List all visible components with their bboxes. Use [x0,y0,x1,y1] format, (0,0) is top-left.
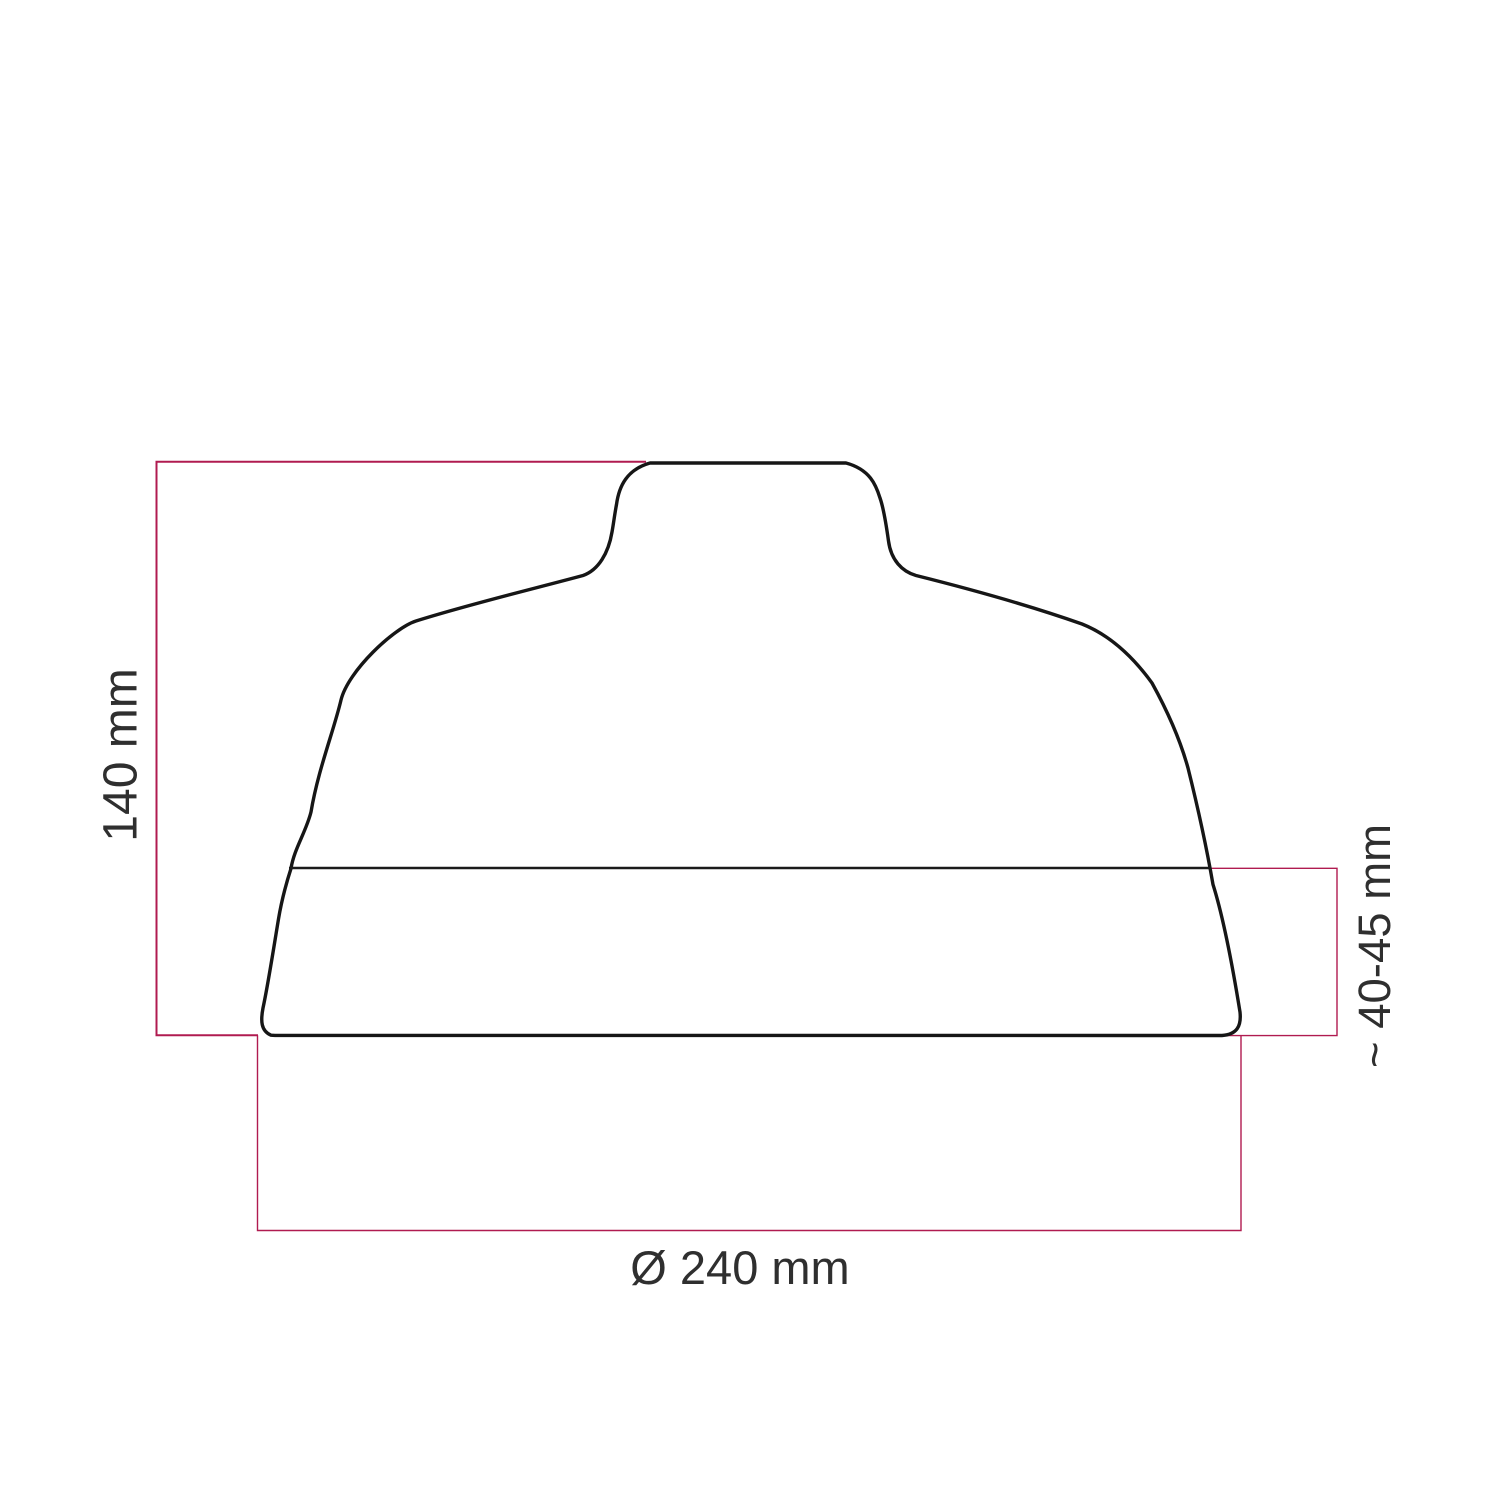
svg-text:Ø 240 mm: Ø 240 mm [630,1241,849,1294]
svg-text:140 mm: 140 mm [95,668,148,841]
svg-text:~ 40-45 mm: ~ 40-45 mm [1349,824,1400,1068]
